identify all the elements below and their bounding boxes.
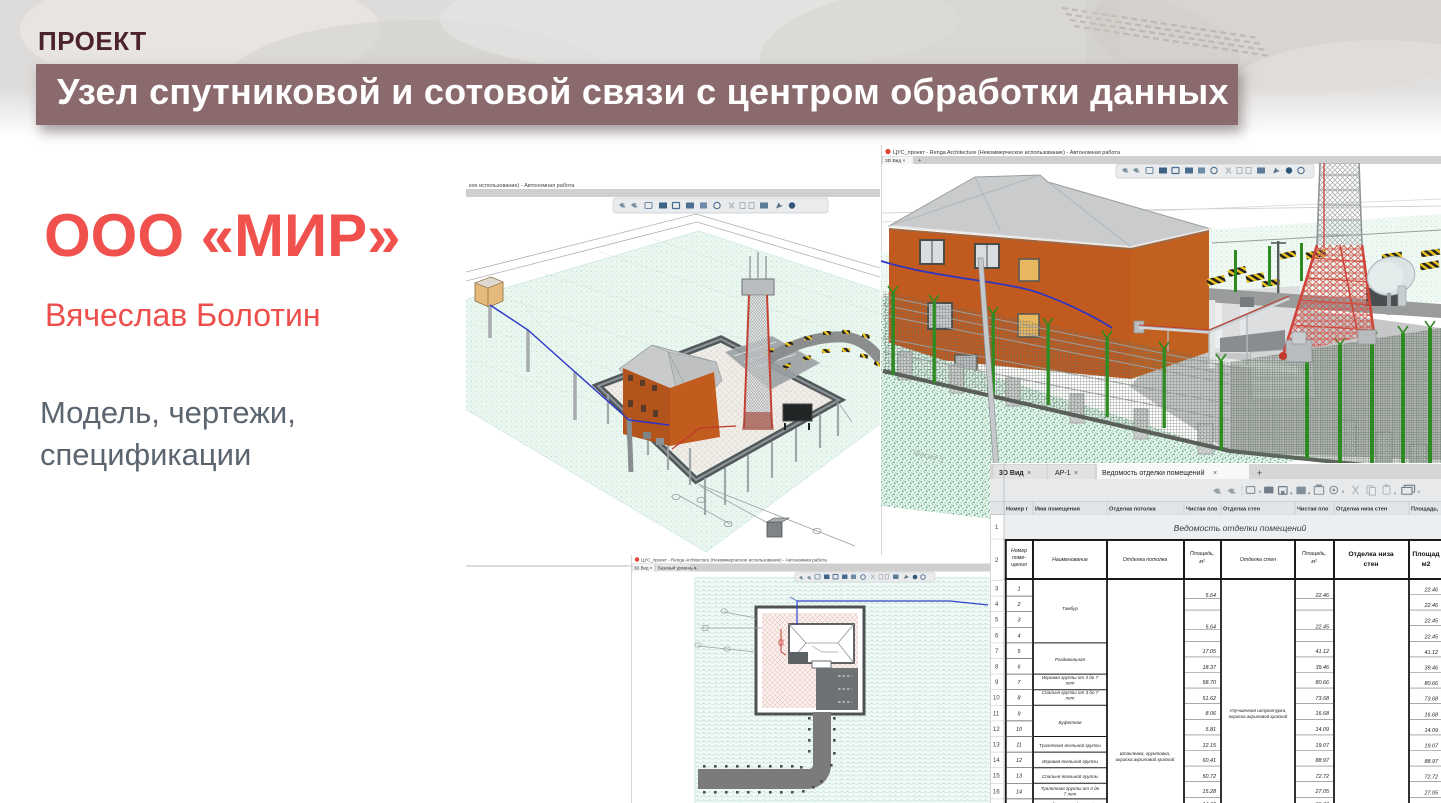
svg-text:11: 11 [993, 711, 1000, 717]
svg-text:×: × [1027, 470, 1031, 477]
svg-text:+: + [918, 158, 921, 164]
svg-text:поме-: поме- [1012, 555, 1026, 561]
svg-text:3D Вид ×: 3D Вид × [885, 158, 905, 164]
svg-text:м²: м² [1199, 559, 1205, 565]
svg-text:+: + [1257, 468, 1262, 478]
svg-text:41.12: 41.12 [1316, 649, 1330, 655]
svg-text:Спальня группы от 3 до 7: Спальня группы от 3 до 7 [1042, 690, 1099, 695]
svg-text:Туалетная группы от 3 до: Туалетная группы от 3 до [1041, 786, 1100, 791]
svg-text:12.15: 12.15 [1203, 743, 1217, 749]
svg-text:14: 14 [993, 758, 1000, 764]
svg-text:стен: стен [1364, 561, 1379, 568]
svg-text:Площадь,: Площадь, [1190, 551, 1214, 557]
svg-text:ЦУС_проект - Renga Architectur: ЦУС_проект - Renga Architecture (Некомме… [893, 150, 1121, 156]
svg-text:АР-1: АР-1 [1055, 470, 1071, 477]
svg-text:Отделка стен: Отделка стен [1240, 557, 1276, 563]
svg-text:7 лет: 7 лет [1064, 791, 1077, 796]
svg-text:Улучшенная штукатурка,: Улучшенная штукатурка, [1230, 708, 1287, 713]
svg-text:Ведомость отделки помещений: Ведомость отделки помещений [1102, 469, 1205, 477]
svg-text:Отделка низа: Отделка низа [1348, 551, 1394, 558]
svg-text:16: 16 [993, 789, 1000, 795]
svg-text:10: 10 [993, 696, 1000, 702]
svg-text:окраска акриловой краской: окраска акриловой краской [1116, 756, 1175, 762]
svg-text:8: 8 [1018, 696, 1021, 702]
svg-text:Спальня ясельной группы: Спальня ясельной группы [1042, 773, 1099, 779]
svg-text:11: 11 [1016, 743, 1022, 749]
svg-text:12: 12 [993, 727, 1000, 733]
svg-text:Номер: Номер [1011, 548, 1027, 554]
svg-text:Игровая группы от 3 до 7: Игровая группы от 3 до 7 [1042, 675, 1099, 680]
svg-text:39.46: 39.46 [1316, 665, 1330, 671]
svg-text:кое использование) - Автономна: кое использование) - Автономная работа [469, 183, 575, 189]
svg-text:41.12: 41.12 [1425, 650, 1439, 656]
svg-text:14.09: 14.09 [1425, 728, 1439, 734]
svg-text:22.46: 22.46 [1315, 593, 1330, 599]
svg-text:5.81: 5.81 [1206, 727, 1217, 733]
svg-text:72.72: 72.72 [1425, 775, 1439, 781]
svg-text:58.70: 58.70 [1203, 680, 1217, 686]
svg-text:5.64: 5.64 [1206, 593, 1217, 599]
svg-text:Игровая ясельной группы: Игровая ясельной группы [1042, 758, 1098, 764]
svg-text:22.46: 22.46 [1424, 588, 1439, 594]
svg-text:27.05: 27.05 [1424, 790, 1439, 796]
svg-text:Ведомость отделки помещений: Ведомость отделки помещений [1174, 523, 1307, 533]
svg-text:2: 2 [1017, 602, 1021, 608]
svg-text:3D Вид ×: 3D Вид × [634, 566, 653, 571]
svg-text:Туалетная ясельной группы: Туалетная ясельной группы [1039, 742, 1101, 748]
svg-text:Буфетная: Буфетная [1059, 720, 1082, 725]
svg-text:окраска акриловой краской: окраска акриловой краской [1229, 713, 1288, 719]
svg-text:22.45: 22.45 [1424, 634, 1439, 640]
svg-text:16.68: 16.68 [1425, 712, 1439, 718]
svg-text:6: 6 [1018, 665, 1021, 671]
svg-text:ЦУС_проект - Renga Architectur: ЦУС_проект - Renga Architecture (Некомме… [641, 558, 827, 563]
svg-text:9: 9 [1018, 711, 1021, 717]
svg-text:73.68: 73.68 [1425, 697, 1439, 703]
svg-text:м2: м2 [1422, 561, 1431, 568]
svg-text:72.72: 72.72 [1316, 774, 1330, 780]
svg-text:Отделка низа стен: Отделка низа стен [1336, 507, 1387, 513]
svg-text:51.62: 51.62 [1203, 696, 1217, 702]
svg-text:50.72: 50.72 [1203, 774, 1217, 780]
svg-text:Базовый уровень ×: Базовый уровень × [658, 566, 697, 571]
svg-text:Наименование: Наименование [1052, 557, 1088, 563]
svg-text:39.46: 39.46 [1425, 666, 1439, 672]
svg-text:м²: м² [1311, 559, 1317, 565]
svg-text:88.97: 88.97 [1425, 759, 1439, 765]
svg-text:Отделка потолка: Отделка потолка [1109, 507, 1157, 513]
svg-text:16.68: 16.68 [1316, 711, 1330, 717]
svg-text:18.37: 18.37 [1203, 665, 1217, 671]
svg-text:27.05: 27.05 [1315, 789, 1330, 795]
svg-text:19.07: 19.07 [1316, 743, 1330, 749]
svg-text:13: 13 [1016, 774, 1022, 780]
svg-text:Номер г: Номер г [1006, 507, 1029, 513]
svg-text:Отделка стен: Отделка стен [1223, 507, 1260, 513]
svg-text:60.41: 60.41 [1203, 758, 1217, 764]
svg-text:Чистая пло: Чистая пло [1297, 507, 1329, 513]
svg-text:Чистая пло: Чистая пло [1186, 507, 1218, 513]
svg-text:15.28: 15.28 [1203, 789, 1217, 795]
svg-text:19.07: 19.07 [1425, 744, 1439, 750]
svg-text:22.45: 22.45 [1424, 619, 1439, 625]
svg-text:Отделка потолка: Отделка потолка [1123, 557, 1168, 563]
svg-text:17.05: 17.05 [1203, 649, 1217, 655]
svg-text:12: 12 [1016, 758, 1022, 764]
svg-text:Площадь,: Площадь, [1302, 551, 1326, 557]
svg-text:лет: лет [1065, 695, 1075, 700]
svg-text:3: 3 [1018, 618, 1021, 624]
svg-text:5.64: 5.64 [1206, 625, 1217, 631]
svg-text:14.09: 14.09 [1316, 727, 1330, 733]
svg-text:Площадь,: Площадь, [1411, 507, 1439, 513]
svg-text:80.66: 80.66 [1316, 680, 1330, 686]
svg-text:80.66: 80.66 [1425, 681, 1439, 687]
svg-text:Площад: Площад [1412, 551, 1440, 558]
svg-text:4: 4 [1018, 633, 1021, 639]
svg-text:Тамбур: Тамбур [1062, 606, 1078, 611]
svg-text:1: 1 [1018, 587, 1021, 593]
svg-text:10: 10 [1016, 727, 1022, 733]
svg-text:Имя помещения: Имя помещения [1035, 507, 1080, 513]
svg-text:73.68: 73.68 [1316, 696, 1330, 702]
svg-text:Шпаклевка, грунтовка,: Шпаклевка, грунтовка, [1120, 751, 1171, 756]
svg-text:щения: щения [1011, 562, 1027, 568]
svg-text:×: × [1074, 470, 1078, 477]
svg-text:22.46: 22.46 [1424, 603, 1439, 609]
svg-text:3D Вид: 3D Вид [999, 470, 1024, 477]
svg-text:×: × [1213, 470, 1217, 477]
svg-text:22.45: 22.45 [1315, 625, 1330, 631]
svg-text:14: 14 [1016, 789, 1022, 795]
svg-text:Раздевальная: Раздевальная [1055, 657, 1086, 662]
svg-text:88.97: 88.97 [1316, 758, 1330, 764]
svg-text:15: 15 [993, 774, 1000, 780]
svg-text:13: 13 [993, 743, 1000, 749]
svg-text:лет: лет [1065, 680, 1075, 685]
svg-text:8.06: 8.06 [1206, 711, 1217, 717]
svg-text:+: + [694, 566, 697, 572]
